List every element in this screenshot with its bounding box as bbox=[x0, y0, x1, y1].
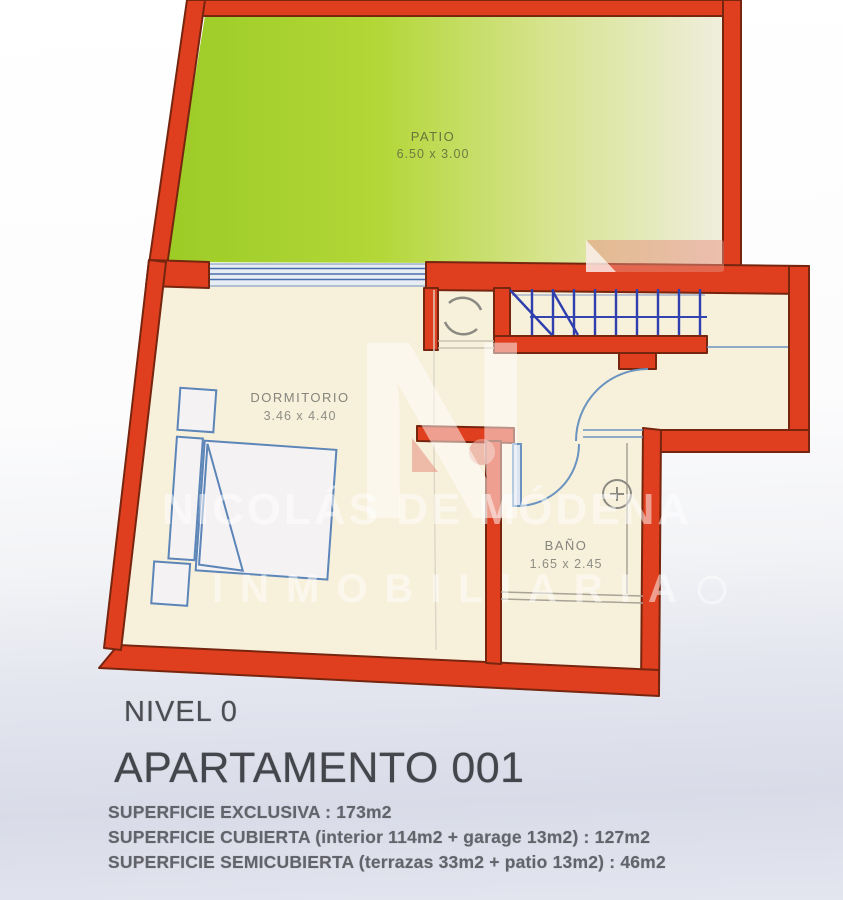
nightstand bbox=[151, 561, 190, 605]
wall-segment bbox=[187, 0, 741, 16]
registered-mark-icon bbox=[699, 577, 725, 603]
window bbox=[209, 264, 426, 286]
watermark-line1: NICOLÁS DE MÓDENA bbox=[162, 484, 692, 534]
watermark-line2: INMOBILIARIA bbox=[212, 567, 694, 611]
wall-segment bbox=[723, 0, 741, 272]
wall-segment bbox=[789, 266, 809, 452]
surface-line: SUPERFICIE EXCLUSIVA : 173m2 bbox=[108, 800, 666, 825]
wall-segment bbox=[657, 430, 809, 452]
wall-segment bbox=[641, 428, 661, 694]
dormitorio-label: DORMITORIO bbox=[250, 390, 349, 405]
patio-label: PATIO bbox=[411, 129, 456, 144]
patio-dims: 6.50 x 3.00 bbox=[397, 147, 470, 161]
apartment-title: APARTAMENTO 001 bbox=[114, 744, 525, 793]
nightstand bbox=[177, 388, 216, 432]
dormitorio-dims: 3.46 x 4.40 bbox=[264, 409, 337, 423]
surface-line: SUPERFICIE CUBIERTA (interior 114m2 + ga… bbox=[108, 825, 666, 850]
level-label: NIVEL 0 bbox=[124, 696, 238, 729]
surface-line: SUPERFICIE SEMICUBIERTA (terrazas 33m2 +… bbox=[108, 850, 666, 875]
scanned-floorplan-page: PATIO 6.50 x 3.00 DORMITORIO 3.46 x 4.40… bbox=[0, 0, 843, 900]
surface-summary: SUPERFICIE EXCLUSIVA : 173m2 SUPERFICIE … bbox=[108, 800, 666, 875]
bano-label: BAÑO bbox=[545, 538, 588, 553]
wall-segment bbox=[619, 353, 656, 369]
